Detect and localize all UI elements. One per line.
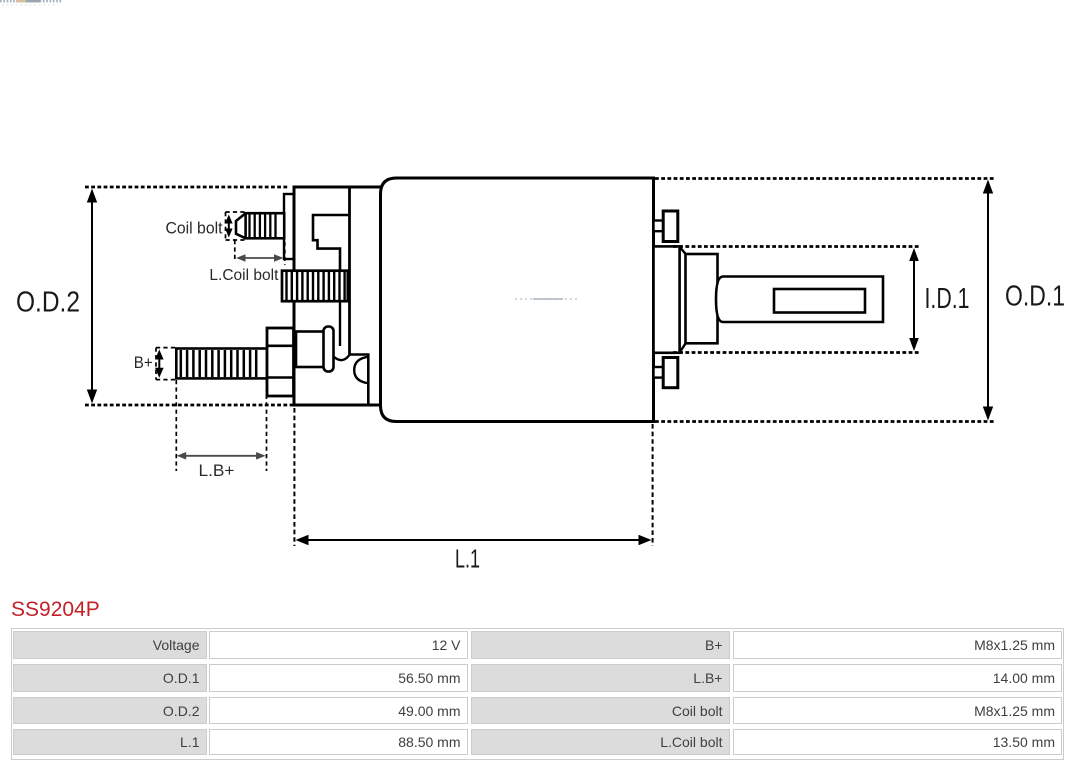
svg-text:I.D.1: I.D.1	[925, 283, 970, 315]
svg-text:Coil bolt: Coil bolt	[166, 220, 223, 238]
svg-text:O.D.1: O.D.1	[1005, 281, 1065, 313]
svg-text:L.B+: L.B+	[199, 461, 235, 480]
svg-text:L.1: L.1	[455, 544, 480, 574]
svg-text:O.D.2: O.D.2	[16, 287, 80, 319]
svg-text:B+: B+	[134, 353, 153, 372]
svg-text:L.Coil bolt: L.Coil bolt	[209, 267, 279, 284]
